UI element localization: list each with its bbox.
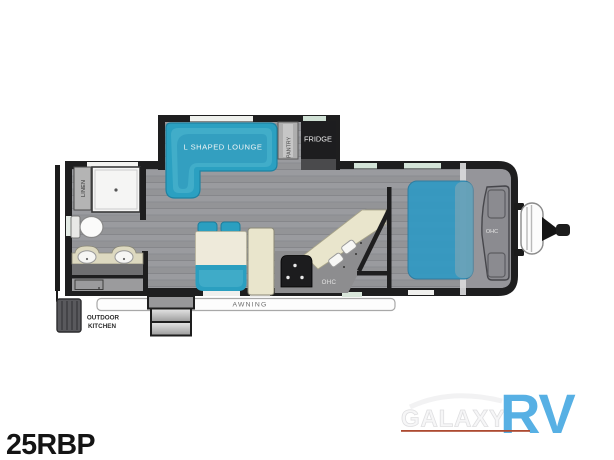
svg-text:AWNING: AWNING xyxy=(233,302,268,309)
svg-text:RV: RV xyxy=(500,382,575,445)
svg-text:PANTRY: PANTRY xyxy=(287,136,293,158)
svg-text:OUTDOOR: OUTDOOR xyxy=(87,315,120,322)
svg-text:25RBP: 25RBP xyxy=(6,429,95,460)
svg-text:KITCHEN: KITCHEN xyxy=(88,323,116,330)
svg-text:GALAXY: GALAXY xyxy=(401,406,506,433)
svg-text:LINEN: LINEN xyxy=(81,180,87,197)
svg-text:FRIDGE: FRIDGE xyxy=(304,135,332,144)
svg-text:L SHAPED LOUNGE: L SHAPED LOUNGE xyxy=(184,143,263,152)
svg-text:OHC: OHC xyxy=(486,229,498,235)
svg-text:OHC: OHC xyxy=(322,279,337,286)
